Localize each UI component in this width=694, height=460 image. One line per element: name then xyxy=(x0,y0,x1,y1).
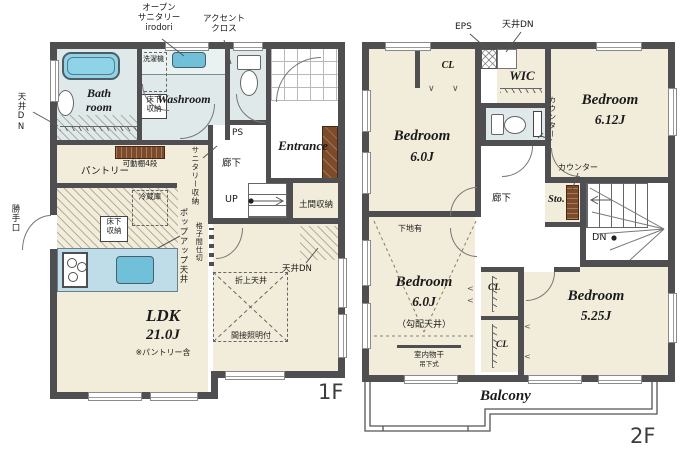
window xyxy=(338,258,347,308)
label-ceiling-dn-2f: 天井DN xyxy=(502,20,534,31)
closet-rail xyxy=(60,126,137,131)
label-dn: DN xyxy=(592,232,606,243)
room-label-cl-top: CL xyxy=(436,60,460,72)
stove xyxy=(62,252,88,288)
window xyxy=(598,375,642,384)
wall-segment xyxy=(287,183,293,223)
room-label-corridor2: 廊下 xyxy=(492,193,511,204)
label-counter-storage: カウンター xyxy=(558,163,598,172)
wall-segment xyxy=(266,49,271,183)
label-sanitary-storage: サニタリー収納 xyxy=(190,146,199,216)
room-label-bedroom-ne-size: 6.12J xyxy=(581,112,639,128)
wall-segment xyxy=(545,177,668,183)
movable-shelf xyxy=(115,146,165,159)
window xyxy=(404,375,458,384)
room-label-ldk-size: 21.0J xyxy=(130,327,196,345)
label-coffered-ceiling: 折上天井 xyxy=(222,276,280,285)
bathtub xyxy=(62,52,120,80)
label-lattice-partition: 格子間仕切 xyxy=(195,222,203,300)
room-label-corridor1: 廊下 xyxy=(222,158,241,169)
room-label-wic: WIC xyxy=(504,68,540,83)
bifold-door-mark: < xyxy=(467,296,474,305)
room-label-bedroom-se: Bedroom xyxy=(562,288,630,306)
window xyxy=(668,293,677,343)
burner xyxy=(68,272,78,282)
wall-segment xyxy=(225,49,230,140)
window xyxy=(362,152,371,194)
label-washer: 洗濯機 xyxy=(140,55,167,63)
wall-segment xyxy=(213,218,345,224)
label-back-door: 勝手口 xyxy=(10,204,20,233)
label-ps: PS xyxy=(232,128,243,139)
wic-rail xyxy=(500,88,542,93)
window xyxy=(338,314,347,358)
room-label-bedroom-sw-note: （勾配天井） xyxy=(390,320,458,331)
toilet2-bowl xyxy=(504,116,526,134)
window xyxy=(50,60,59,102)
room-label-balcony: Balcony xyxy=(480,388,531,406)
label-underfloor-kitchen: 床下 収納 xyxy=(101,218,127,236)
label-hanging-type: 吊下式 xyxy=(410,361,448,369)
annotation-open-sanitary: オープン サニタリー irodori xyxy=(120,3,198,33)
label-ceiling-dn-left: 天井DN xyxy=(16,92,26,133)
bifold-door-mark: ∨ xyxy=(452,84,459,94)
eps-shaft xyxy=(481,49,497,69)
window xyxy=(233,42,263,51)
floor1-label: 1F xyxy=(318,380,343,405)
wall-segment xyxy=(266,178,338,183)
window xyxy=(150,392,198,401)
label-fridge: 冷蔵庫 xyxy=(133,193,167,202)
wall-segment xyxy=(481,103,551,108)
bifold-door-mark: ∨ xyxy=(428,84,435,94)
ceiling-down-hatch-2f xyxy=(497,49,517,69)
burner xyxy=(77,262,87,272)
room-label-storage: Sto. xyxy=(548,194,565,206)
wall-segment xyxy=(415,49,420,88)
bifold-door-mark: < xyxy=(524,352,531,361)
bath-basin xyxy=(57,90,74,116)
room-label-bath: Bath room xyxy=(75,86,123,114)
window xyxy=(528,375,582,384)
window xyxy=(362,303,371,349)
wall-segment xyxy=(57,183,177,188)
wall-segment xyxy=(580,260,668,267)
window xyxy=(362,240,371,286)
ceiling-down-hatch-1f xyxy=(300,226,338,260)
staircase-2f-run xyxy=(586,183,648,228)
washroom-sink xyxy=(172,52,206,68)
label-popup-ceiling: ポップアップ天井 xyxy=(178,208,188,312)
bifold-door-mark: < xyxy=(524,322,531,331)
label-up: UP xyxy=(225,194,238,205)
room-label-ldk: LDK xyxy=(130,306,196,326)
room-label-pantry: パントリー xyxy=(70,166,140,177)
room-label-bedroom-se-size: 5.25J xyxy=(569,308,623,324)
room-label-bedroom-sw: Bedroom xyxy=(390,274,458,292)
burner xyxy=(67,258,77,268)
label-indoor-drying: 室内物干 xyxy=(404,351,454,360)
window xyxy=(668,88,677,136)
room-label-bedroom-nw-size: 6.0J xyxy=(398,149,446,165)
room-label-cl-bottom: CL xyxy=(496,340,508,351)
lattice-partition-marks xyxy=(209,228,214,266)
drying-bar xyxy=(397,345,461,348)
toilet1-bowl xyxy=(240,70,258,96)
room-label-cl-mid: CL xyxy=(488,283,500,294)
label-wall-backing: 下地有 xyxy=(398,224,422,233)
back-door-opening xyxy=(50,215,57,249)
label-counter-toilet: カウンター xyxy=(547,96,556,158)
room-label-bedroom-nw: Bedroom xyxy=(388,128,456,146)
floorplan-canvas: オープン サニタリー irodori アクセント クロス Bath room W… xyxy=(0,0,694,460)
window xyxy=(88,392,142,401)
bifold-door-mark: < xyxy=(467,284,474,293)
staircase-1f xyxy=(248,183,287,218)
shoe-cabinet xyxy=(322,126,338,183)
wall-segment xyxy=(57,140,213,145)
room-label-bedroom-sw-size: 6.0J xyxy=(400,294,448,310)
wall-segment xyxy=(481,316,518,320)
window xyxy=(225,371,285,380)
room-label-ldk-note: ※パントリー含 xyxy=(118,348,208,357)
label-ceiling-dn-right: 天井DN xyxy=(282,264,312,274)
toilet1-tank xyxy=(237,55,261,70)
window xyxy=(385,42,431,51)
label-underfloor-wash: 床下 収納 xyxy=(141,96,167,114)
annotation-accent-cross: アクセント クロス xyxy=(196,14,252,34)
room-label-bedroom-ne: Bedroom xyxy=(576,92,644,110)
wall-segment xyxy=(208,125,213,224)
label-indirect-light: 間接照明付 xyxy=(222,331,280,340)
toilet2-tank xyxy=(491,114,504,135)
room-label-entrance: Entrance xyxy=(272,138,334,153)
storage-counter-shelf xyxy=(566,185,579,220)
window xyxy=(596,42,642,51)
window xyxy=(165,42,209,51)
label-eps: EPS xyxy=(455,22,472,33)
room-label-doma: 土間収納 xyxy=(296,200,336,210)
window xyxy=(362,90,371,132)
kitchen-sink xyxy=(116,256,154,284)
door-arc-backdoor xyxy=(22,215,51,250)
floor2-label: 2F xyxy=(630,424,655,449)
toilet2-counter xyxy=(533,111,542,137)
wall-segment xyxy=(545,222,586,227)
